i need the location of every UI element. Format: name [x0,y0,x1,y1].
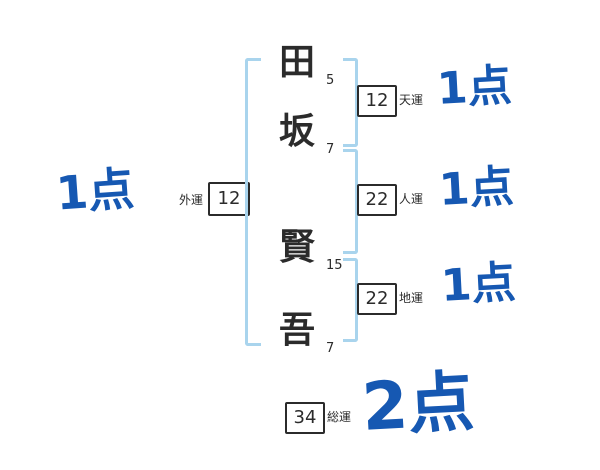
earth-luck-bracket [343,258,358,342]
total-luck-value-box: 34 [285,402,325,434]
name-fortune-diagram: 1点 外運 12 田 5 坂 7 賢 15 吾 7 12 天運 1点 22 人運… [0,0,600,470]
name-char-1: 田 5 [274,45,320,81]
stroke-count-4: 7 [326,342,334,355]
name-char-3: 賢 15 [274,230,320,266]
outer-luck-score: 1点 [54,165,135,216]
total-luck-label: 総運 [327,411,351,423]
stroke-count-1: 5 [326,74,334,87]
earth-luck-score: 1点 [440,261,517,309]
heaven-luck-value-box: 12 [357,85,397,117]
outer-luck-label: 外運 [179,194,203,206]
earth-luck-label: 地運 [399,292,423,304]
name-char-glyph: 吾 [279,310,315,351]
person-luck-score: 1点 [438,165,515,213]
heaven-luck-bracket [343,58,358,147]
person-luck-label: 人運 [399,193,423,205]
name-char-glyph: 坂 [279,111,315,152]
stroke-count-2: 7 [326,143,334,156]
name-char-glyph: 田 [279,42,315,83]
earth-luck-value-box: 22 [357,283,397,315]
total-luck-score: 2点 [360,369,475,441]
outer-luck-bracket [245,58,261,346]
person-luck-value-box: 22 [357,184,397,216]
stroke-count-3: 15 [326,259,343,272]
outer-luck-value-box: 12 [208,182,250,216]
name-char-glyph: 賢 [279,227,315,268]
heaven-luck-score: 1点 [436,64,513,112]
heaven-luck-label: 天運 [399,94,423,106]
name-char-2: 坂 7 [274,114,320,150]
person-luck-bracket [343,149,358,254]
name-char-4: 吾 7 [274,313,320,349]
